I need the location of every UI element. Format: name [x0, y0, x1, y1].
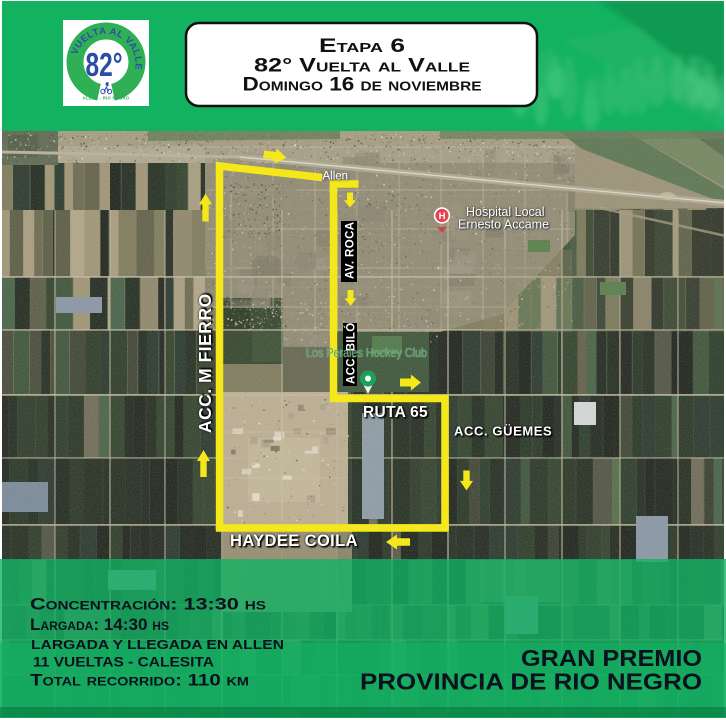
svg-text:Largada: 14:30 hs: Largada: 14:30 hs [30, 615, 169, 634]
svg-text:PROVINCIA DE RIO NEGRO: PROVINCIA DE RIO NEGRO [360, 669, 702, 695]
svg-text:82° Vuelta al Valle: 82° Vuelta al Valle [254, 56, 470, 77]
svg-text:Total recorrido: 110 km: Total recorrido: 110 km [30, 671, 249, 690]
svg-text:Los Perales Hockey Club: Los Perales Hockey Club [306, 345, 427, 360]
svg-text:Allen: Allen [323, 171, 349, 183]
svg-text:GRAN PREMIO: GRAN PREMIO [521, 645, 702, 671]
svg-text:HAYDEE COILA: HAYDEE COILA [230, 532, 358, 550]
svg-text:Ernesto Accame: Ernesto Accame [458, 218, 549, 232]
svg-text:Concentración: 13:30 hs: Concentración: 13:30 hs [30, 595, 266, 614]
svg-text:ACC. M FIERRO: ACC. M FIERRO [195, 293, 215, 433]
svg-text:AV. ROCA: AV. ROCA [345, 221, 357, 279]
svg-text:ACC. GÜEMES: ACC. GÜEMES [454, 424, 552, 439]
svg-text:H: H [439, 211, 446, 222]
svg-text:Etapa 6: Etapa 6 [319, 36, 405, 57]
svg-text:LARGADA Y LLEGADA EN ALLEN: LARGADA Y LLEGADA EN ALLEN [31, 637, 284, 652]
svg-text:Domingo 16 de noviembre: Domingo 16 de noviembre [243, 75, 482, 96]
svg-text:11 VUELTAS - CALESITA: 11 VUELTAS - CALESITA [33, 654, 214, 670]
svg-text:RUTA 65: RUTA 65 [363, 404, 428, 421]
svg-text:82°: 82° [86, 46, 123, 83]
svg-text:ALLEN - RIO NEGRO: ALLEN - RIO NEGRO [83, 96, 130, 101]
